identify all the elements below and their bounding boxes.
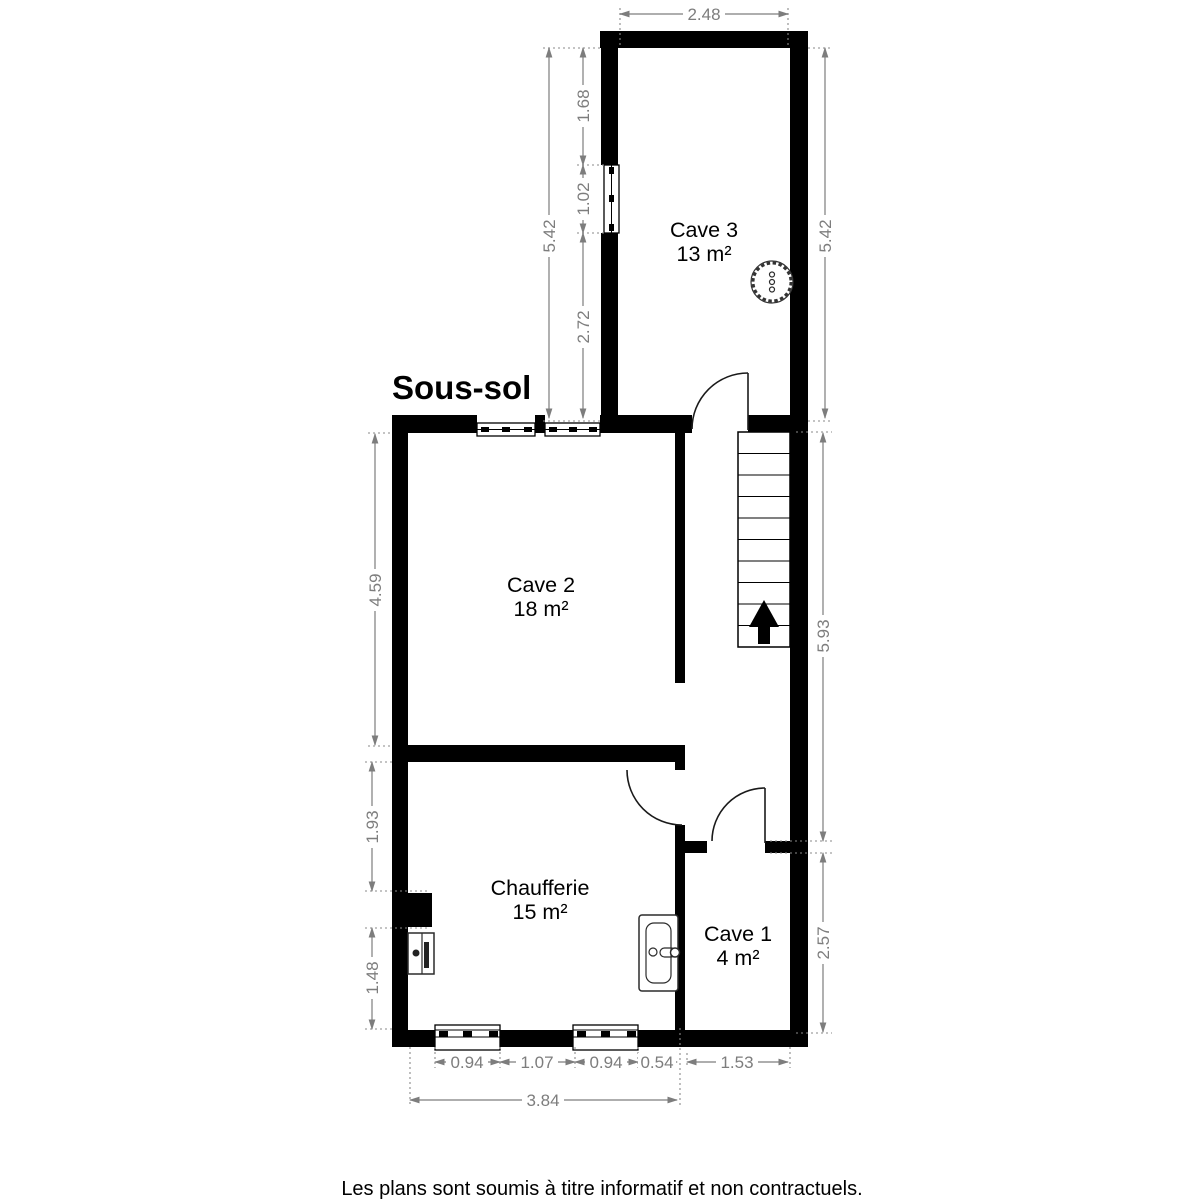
room-label-cave3: Cave 3 13 m² bbox=[670, 218, 738, 266]
staircase bbox=[738, 432, 790, 647]
dimension-label: 4.59 bbox=[366, 573, 385, 606]
dimension-right-total: 5.42 bbox=[816, 48, 835, 418]
dimension-label: 5.93 bbox=[814, 619, 833, 652]
wall-segment bbox=[601, 233, 618, 415]
door-cave1 bbox=[712, 788, 765, 843]
room-label-cave2: Cave 2 18 m² bbox=[507, 573, 575, 621]
dimension-label: 1.93 bbox=[363, 810, 382, 843]
wall-segment bbox=[601, 48, 618, 165]
dimension-label: 0.94 bbox=[450, 1053, 483, 1072]
room-label-chaufferie: Chaufferie 15 m² bbox=[491, 876, 590, 924]
dimension-cave1-height: 2.57 bbox=[814, 853, 833, 1032]
wall-segment bbox=[392, 433, 408, 1047]
dimension-label: 5.42 bbox=[540, 219, 559, 252]
room-area: 18 m² bbox=[514, 597, 569, 621]
window-symbol-bottom-1 bbox=[435, 1025, 500, 1050]
dimension-label: 1.02 bbox=[574, 182, 593, 215]
window-symbol-cave2-top-1 bbox=[477, 423, 535, 436]
room-labels: Cave 3 13 m² Cave 2 18 m² Chaufferie 15 … bbox=[491, 218, 772, 970]
dimension-label: 3.84 bbox=[526, 1091, 559, 1110]
dimension-bottom-total: 3.84 bbox=[410, 1091, 677, 1110]
wall-segment bbox=[600, 31, 808, 48]
floor-title: Sous-sol bbox=[392, 369, 531, 406]
dimension-chaufferie-lower: 1.48 bbox=[363, 928, 382, 1029]
dimension-label: 1.48 bbox=[363, 961, 382, 994]
dimension-left-window: 1.02 bbox=[574, 165, 593, 233]
wall-segment bbox=[790, 31, 808, 1047]
room-name: Cave 2 bbox=[507, 573, 575, 597]
dimension-bottom-right: 0.54 bbox=[638, 1053, 677, 1072]
window-symbol-bottom-2 bbox=[573, 1025, 638, 1050]
wall-segment bbox=[765, 841, 790, 853]
wall-segment bbox=[685, 841, 707, 853]
dimension-label: 2.57 bbox=[814, 926, 833, 959]
disclaimer-text: Les plans sont soumis à titre informatif… bbox=[341, 1178, 862, 1200]
dimension-label: 1.68 bbox=[574, 89, 593, 122]
dimension-label: 0.54 bbox=[640, 1053, 673, 1072]
dimension-left-lower: 2.72 bbox=[574, 233, 593, 418]
wall-segment bbox=[392, 1030, 435, 1047]
dimension-hall-height: 5.93 bbox=[814, 433, 833, 841]
wall-segment bbox=[675, 745, 685, 770]
window-symbol-cave3-left bbox=[604, 165, 619, 233]
floor-plan: 2.48 5.42 1.68 1.02 bbox=[0, 0, 1200, 1200]
dimension-label: 0.94 bbox=[589, 1053, 622, 1072]
dimension-bottom-middle: 1.07 bbox=[500, 1053, 575, 1072]
dimension-bottom-window2: 0.94 bbox=[575, 1053, 638, 1072]
room-area: 15 m² bbox=[513, 900, 568, 924]
dimension-cave3-width: 2.48 bbox=[620, 5, 788, 24]
dimension-label: 1.07 bbox=[520, 1053, 553, 1072]
door-cave3 bbox=[692, 373, 748, 430]
room-name: Cave 1 bbox=[704, 922, 772, 946]
wall-segment bbox=[392, 745, 675, 762]
dimension-label: 1.53 bbox=[720, 1053, 753, 1072]
door-chaufferie bbox=[627, 770, 682, 825]
wall-segment bbox=[600, 415, 692, 433]
wall-segment bbox=[748, 415, 790, 433]
dimension-cave1-width: 1.53 bbox=[687, 1053, 788, 1072]
wall-segment bbox=[535, 415, 545, 433]
wall-segment bbox=[675, 433, 685, 683]
dimension-cave2-height: 4.59 bbox=[366, 434, 385, 745]
wall-segment bbox=[392, 415, 477, 433]
dimension-left-total: 5.42 bbox=[540, 48, 559, 418]
room-name: Chaufferie bbox=[491, 876, 590, 900]
dimension-label: 5.42 bbox=[816, 219, 835, 252]
room-name: Cave 3 bbox=[670, 218, 738, 242]
wall-segment bbox=[684, 1030, 790, 1047]
wall-segment bbox=[500, 1030, 575, 1047]
sink-fixture bbox=[639, 915, 680, 991]
dimension-label: 2.72 bbox=[574, 310, 593, 343]
room-label-cave1: Cave 1 4 m² bbox=[704, 922, 772, 970]
room-area: 13 m² bbox=[677, 242, 732, 266]
window-symbol-cave2-top-2 bbox=[545, 423, 600, 436]
wall-segment bbox=[638, 1030, 676, 1047]
dimension-label: 2.48 bbox=[687, 5, 720, 24]
dimension-chaufferie-upper: 1.93 bbox=[363, 762, 382, 891]
chimney-block bbox=[408, 893, 432, 927]
dimension-left-upper: 1.68 bbox=[574, 48, 593, 165]
floor-plan-page: 2.48 5.42 1.68 1.02 bbox=[0, 0, 1200, 1200]
room-area: 4 m² bbox=[717, 946, 760, 970]
water-heater-symbol bbox=[751, 261, 793, 303]
boiler-unit bbox=[408, 933, 434, 974]
dimension-bottom-window1: 0.94 bbox=[435, 1053, 500, 1072]
